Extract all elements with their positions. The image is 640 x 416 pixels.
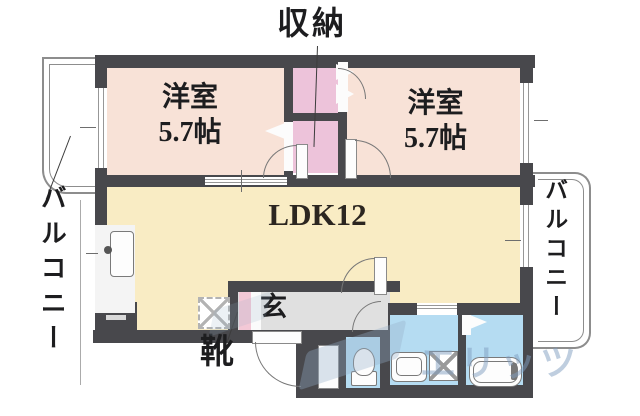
door-handle-icon bbox=[104, 246, 112, 254]
window bbox=[520, 83, 533, 163]
bedroom-left-door-leaf bbox=[296, 144, 308, 179]
front-door-arc bbox=[255, 342, 301, 387]
window-tick bbox=[241, 170, 242, 192]
washroom-opening bbox=[417, 303, 457, 315]
storage-label: 収納 bbox=[277, 4, 347, 42]
balcony-left-boundary-line bbox=[80, 200, 81, 385]
left-service-door-leaf bbox=[110, 231, 134, 277]
balcony-right-label: バルコニー bbox=[540, 178, 568, 343]
wall bbox=[95, 55, 535, 68]
floor-plan: 収納 洋室 5.7帖 洋室 5.7帖 LDK12 玄 靴 バルコニー バルコニー… bbox=[0, 0, 640, 416]
window bbox=[95, 88, 107, 168]
washbasin-bowl-icon bbox=[396, 357, 422, 376]
bedroom-right-type: 洋室 bbox=[358, 86, 513, 121]
ldk-hall-door-leaf bbox=[374, 257, 387, 295]
window-tick bbox=[534, 120, 548, 121]
window-tick bbox=[86, 253, 98, 254]
balcony-left-label: バルコニー bbox=[36, 184, 67, 384]
balcony-sliding-door bbox=[520, 205, 533, 267]
watermark-text: エリッツ bbox=[420, 334, 580, 386]
window-tick bbox=[80, 127, 96, 128]
bedroom-left-type: 洋室 bbox=[115, 80, 265, 115]
kitchen-counter-mark bbox=[106, 315, 126, 320]
bedroom-left-size: 5.7帖 bbox=[115, 115, 265, 150]
bedroom-sliding-door bbox=[205, 177, 287, 185]
wall bbox=[95, 175, 535, 187]
bedroom-right-size: 5.7帖 bbox=[358, 121, 513, 156]
bath-door bbox=[462, 315, 471, 335]
ldk-label: LDK12 bbox=[255, 196, 380, 233]
window-tick bbox=[505, 240, 521, 241]
shoes-label: 靴 bbox=[200, 333, 234, 374]
